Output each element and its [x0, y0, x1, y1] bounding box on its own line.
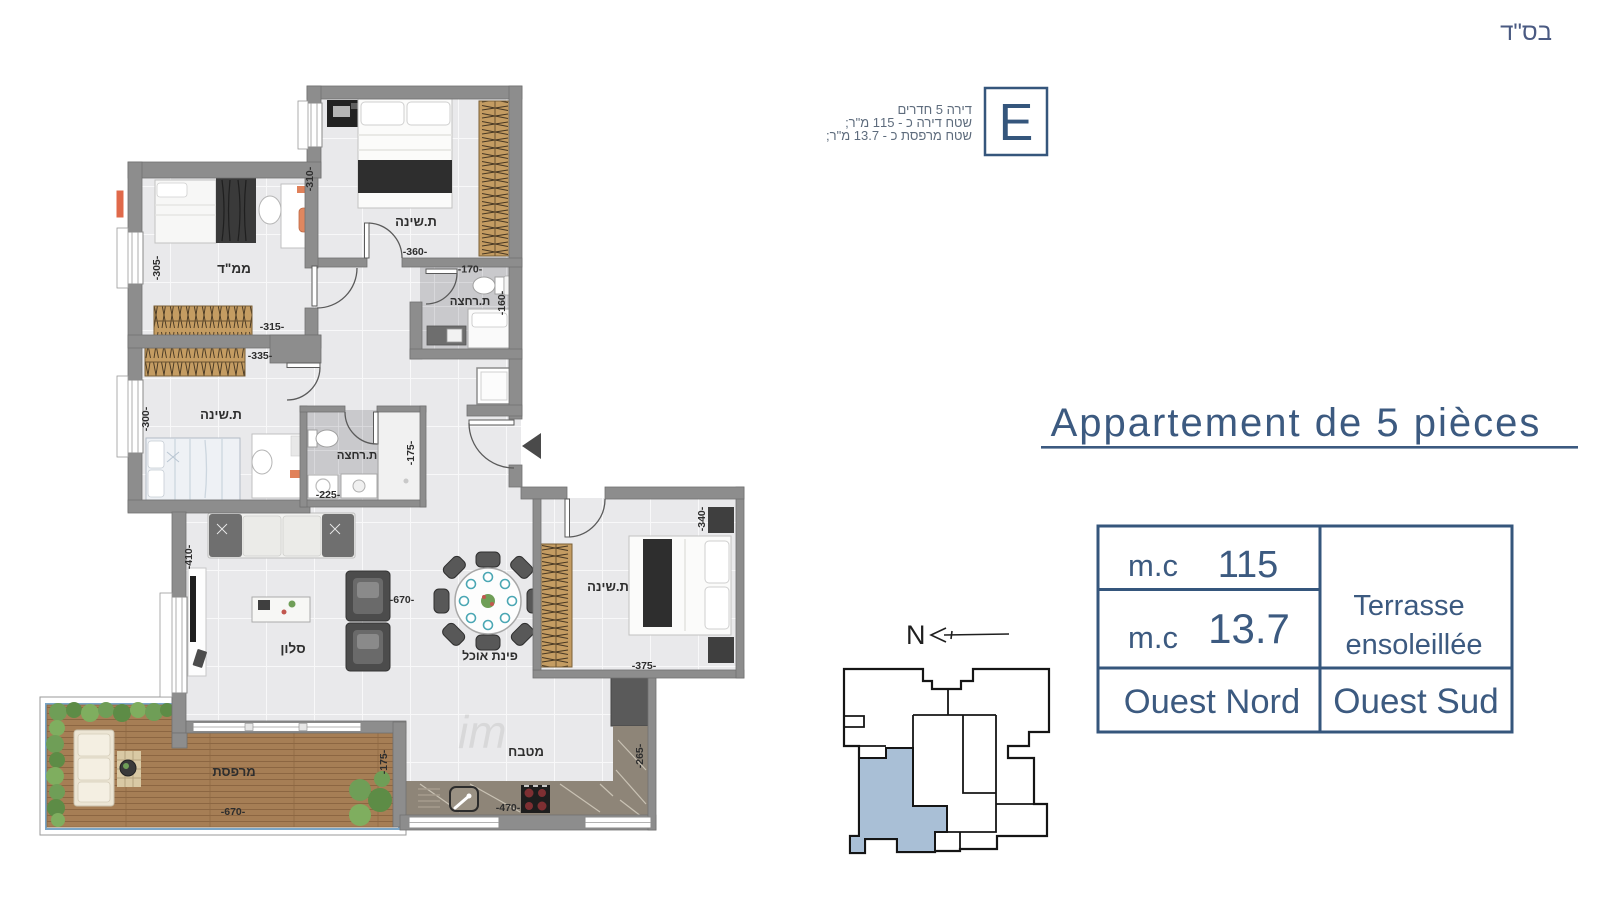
svg-text:סלון: סלון [280, 641, 305, 656]
svg-text:ת.שינה: ת.שינה [395, 214, 437, 229]
svg-text:13.7: 13.7 [1208, 605, 1290, 652]
svg-text:-175-: -175- [378, 749, 390, 774]
svg-text:-315-: -315- [260, 321, 285, 333]
svg-text:ת.רחצה: ת.רחצה [337, 450, 378, 462]
svg-text:-225-: -225- [316, 489, 341, 501]
svg-text:-300-: -300- [140, 406, 152, 431]
svg-text:Terrasse: Terrasse [1353, 590, 1464, 622]
svg-text:Appartement de 5 pièces: Appartement de 5 pièces [1051, 401, 1542, 445]
svg-text:-175-: -175- [405, 440, 417, 465]
svg-text:-170-: -170- [458, 264, 483, 276]
svg-text:ensoleillée: ensoleillée [1345, 629, 1482, 661]
svg-text:ת.שינה: ת.שינה [587, 579, 629, 594]
svg-text:בס"ד: בס"ד [1500, 19, 1552, 46]
svg-text:Ouest Nord: Ouest Nord [1124, 683, 1300, 721]
svg-text:ממ"ד: ממ"ד [217, 261, 251, 276]
svg-text:-310-: -310- [304, 166, 316, 191]
svg-text:ת.רחצה: ת.רחצה [450, 296, 491, 308]
svg-text:-670-: -670- [221, 806, 246, 818]
svg-text:-470-: -470- [496, 802, 521, 814]
svg-text:-160-: -160- [496, 290, 508, 315]
svg-text:-335-: -335- [248, 350, 273, 362]
svg-text:ת.שינה: ת.שינה [200, 407, 242, 422]
svg-text:-360-: -360- [403, 246, 428, 258]
svg-text:m.c: m.c [1128, 620, 1178, 655]
svg-text:-375-: -375- [632, 660, 657, 672]
svg-text:N: N [906, 620, 926, 650]
svg-text:שטח מרפסת כ - 13.7 מ"ר;: שטח מרפסת כ - 13.7 מ"ר; [826, 128, 972, 143]
svg-text:m.c: m.c [1128, 548, 1178, 583]
svg-text:פינת אוכל: פינת אוכל [462, 649, 518, 663]
svg-text:im: im [458, 706, 507, 758]
svg-text:115: 115 [1218, 544, 1279, 586]
svg-text:E: E [999, 94, 1034, 152]
svg-text:-265-: -265- [634, 743, 646, 768]
svg-text:-340-: -340- [696, 506, 708, 531]
svg-text:-410-: -410- [183, 544, 195, 569]
svg-text:-305-: -305- [151, 255, 163, 280]
svg-text:-670-: -670- [390, 594, 415, 606]
svg-text:מטבח: מטבח [508, 744, 544, 759]
svg-text:Ouest Sud: Ouest Sud [1333, 682, 1498, 721]
svg-text:מרפסת: מרפסת [212, 764, 255, 779]
